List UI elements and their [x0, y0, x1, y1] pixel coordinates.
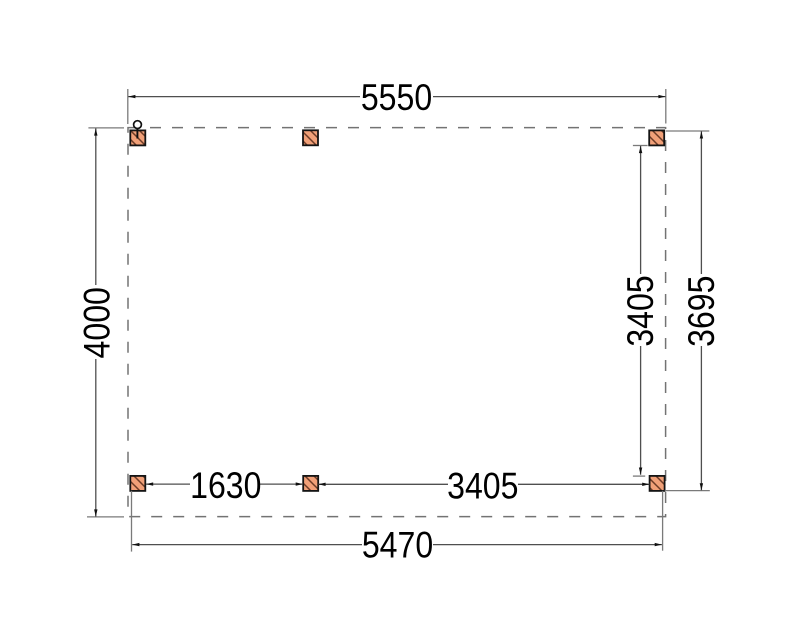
svg-text:1630: 1630: [190, 465, 261, 507]
svg-text:3695: 3695: [680, 276, 722, 347]
svg-text:3405: 3405: [447, 465, 518, 507]
svg-text:5550: 5550: [361, 76, 432, 118]
svg-text:3405: 3405: [620, 275, 662, 346]
svg-text:5470: 5470: [362, 524, 433, 566]
svg-text:4000: 4000: [76, 287, 118, 358]
